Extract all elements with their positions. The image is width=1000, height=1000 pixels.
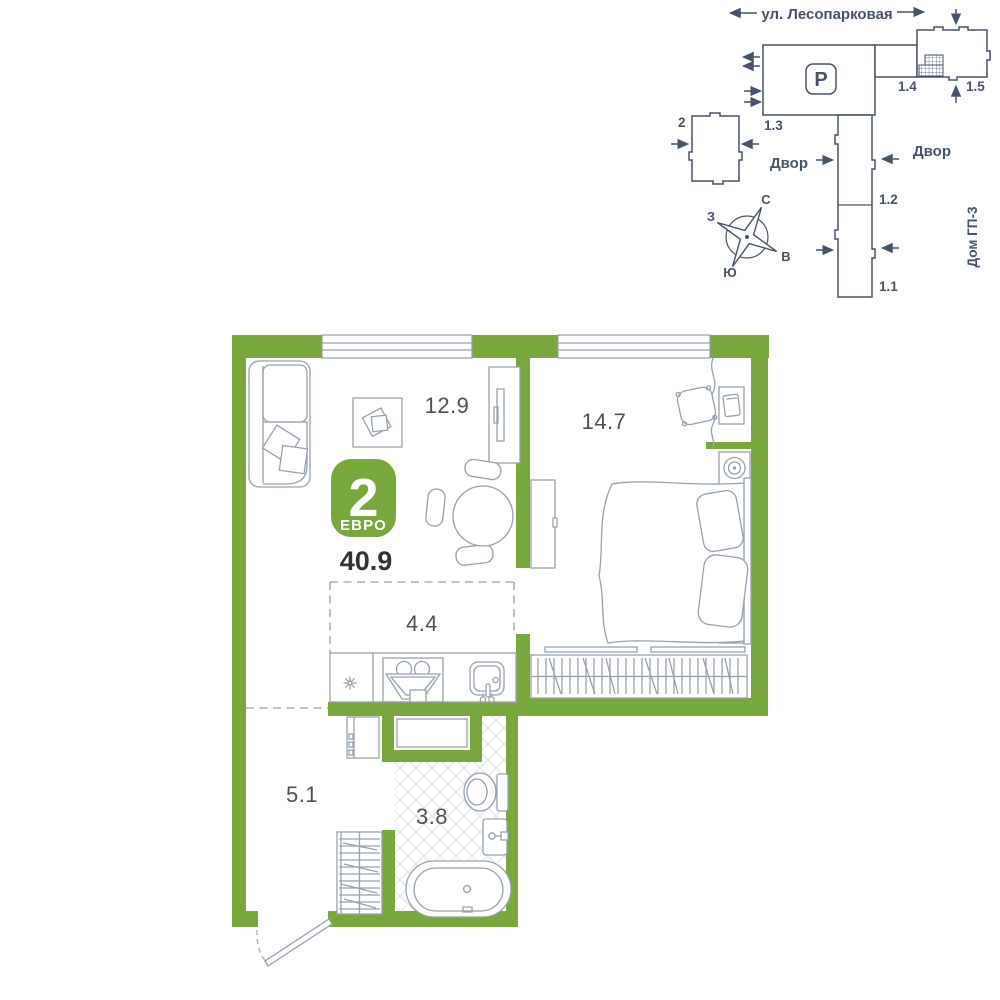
parking-icon-letter: P bbox=[814, 69, 827, 91]
desk-chair bbox=[676, 386, 717, 427]
compass-west-label: З bbox=[707, 209, 715, 224]
house-gp3-label: Дом ГП-3 bbox=[965, 206, 980, 267]
door-swing-arc bbox=[257, 930, 267, 963]
wall-bottom-left-stub bbox=[232, 911, 258, 927]
wall-left bbox=[232, 335, 246, 927]
compass-center-dot bbox=[745, 235, 749, 239]
wall-right bbox=[751, 335, 768, 716]
compass-east-label: В bbox=[781, 249, 790, 264]
bedroom-furniture bbox=[531, 358, 751, 698]
building-column bbox=[835, 115, 875, 297]
dining-chair-left bbox=[425, 488, 446, 527]
compass-south-label: Ю bbox=[723, 265, 736, 280]
dining-table-set bbox=[425, 458, 513, 566]
tv-unit bbox=[489, 367, 520, 463]
kitchen-counter bbox=[330, 653, 516, 702]
bedroom-wardrobe bbox=[531, 647, 747, 698]
desk bbox=[719, 387, 744, 424]
kitchen-area-label: 4.4 bbox=[406, 611, 438, 636]
building-1-2-label: 1.2 bbox=[879, 192, 898, 207]
apartment-plan-page: ул. Лесопарковая P 1.3 1.4 1.5 2 1.2 1 bbox=[0, 0, 1000, 1000]
coffee-table bbox=[353, 398, 402, 447]
building-2 bbox=[689, 113, 742, 184]
bathroom-sink bbox=[483, 819, 508, 855]
courtyard-label-left: Двор bbox=[770, 155, 808, 172]
partition-cabinet bbox=[531, 480, 557, 568]
bathroom-area-label: 3.8 bbox=[416, 804, 448, 829]
living-room-area-label: 12.9 bbox=[425, 393, 470, 418]
washing-machine bbox=[347, 717, 379, 758]
door-leaf bbox=[265, 919, 332, 966]
snowflake-icon bbox=[344, 677, 357, 690]
bedroom-area-label: 14.7 bbox=[582, 409, 627, 434]
sofa bbox=[249, 361, 310, 487]
hallway-wardrobe bbox=[337, 832, 382, 914]
toilet bbox=[464, 773, 508, 811]
badge-type-label: ЕВРО bbox=[340, 517, 387, 534]
plan-svg: ул. Лесопарковая P 1.3 1.4 1.5 2 1.2 1 bbox=[0, 0, 1000, 1000]
entrance-door bbox=[257, 919, 332, 966]
bathtub bbox=[406, 861, 511, 917]
floor-plan: 12.9 14.7 4.4 5.1 3.8 2 ЕВРО 40.9 bbox=[232, 335, 769, 966]
dining-chair-bottom bbox=[455, 544, 494, 566]
building-1-4 bbox=[875, 45, 917, 77]
compass-north-label: С bbox=[761, 192, 771, 207]
compass: С З В Ю bbox=[707, 192, 791, 280]
building-1-1-label: 1.1 bbox=[879, 279, 898, 294]
building-1-3-label: 1.3 bbox=[764, 118, 783, 133]
dining-table bbox=[453, 486, 513, 546]
street-label: ул. Лесопарковая bbox=[761, 6, 892, 23]
site-plan: ул. Лесопарковая P 1.3 1.4 1.5 2 1.2 1 bbox=[671, 6, 990, 297]
pillow-bottom bbox=[697, 554, 749, 629]
utility-shaft bbox=[397, 719, 467, 747]
living-room-window bbox=[322, 335, 472, 358]
total-area-label: 40.9 bbox=[340, 546, 393, 576]
bedroom-window bbox=[558, 335, 710, 358]
building-2-label: 2 bbox=[678, 115, 686, 130]
wall-bathroom-left bbox=[382, 830, 395, 911]
hallway-area-label: 5.1 bbox=[286, 782, 318, 807]
bed bbox=[599, 478, 751, 644]
courtyard-label-right: Двор bbox=[913, 143, 951, 160]
wall-niche-bottom bbox=[382, 750, 482, 762]
building-1-5-label: 1.5 bbox=[966, 79, 985, 94]
building-1-4-label: 1.4 bbox=[898, 79, 917, 94]
wall-bedroom-bottom bbox=[516, 698, 768, 716]
wall-niche-right bbox=[470, 716, 482, 762]
apartment-type-badge: 2 ЕВРО bbox=[331, 459, 396, 537]
wall-kitchen-bottom bbox=[328, 702, 518, 716]
